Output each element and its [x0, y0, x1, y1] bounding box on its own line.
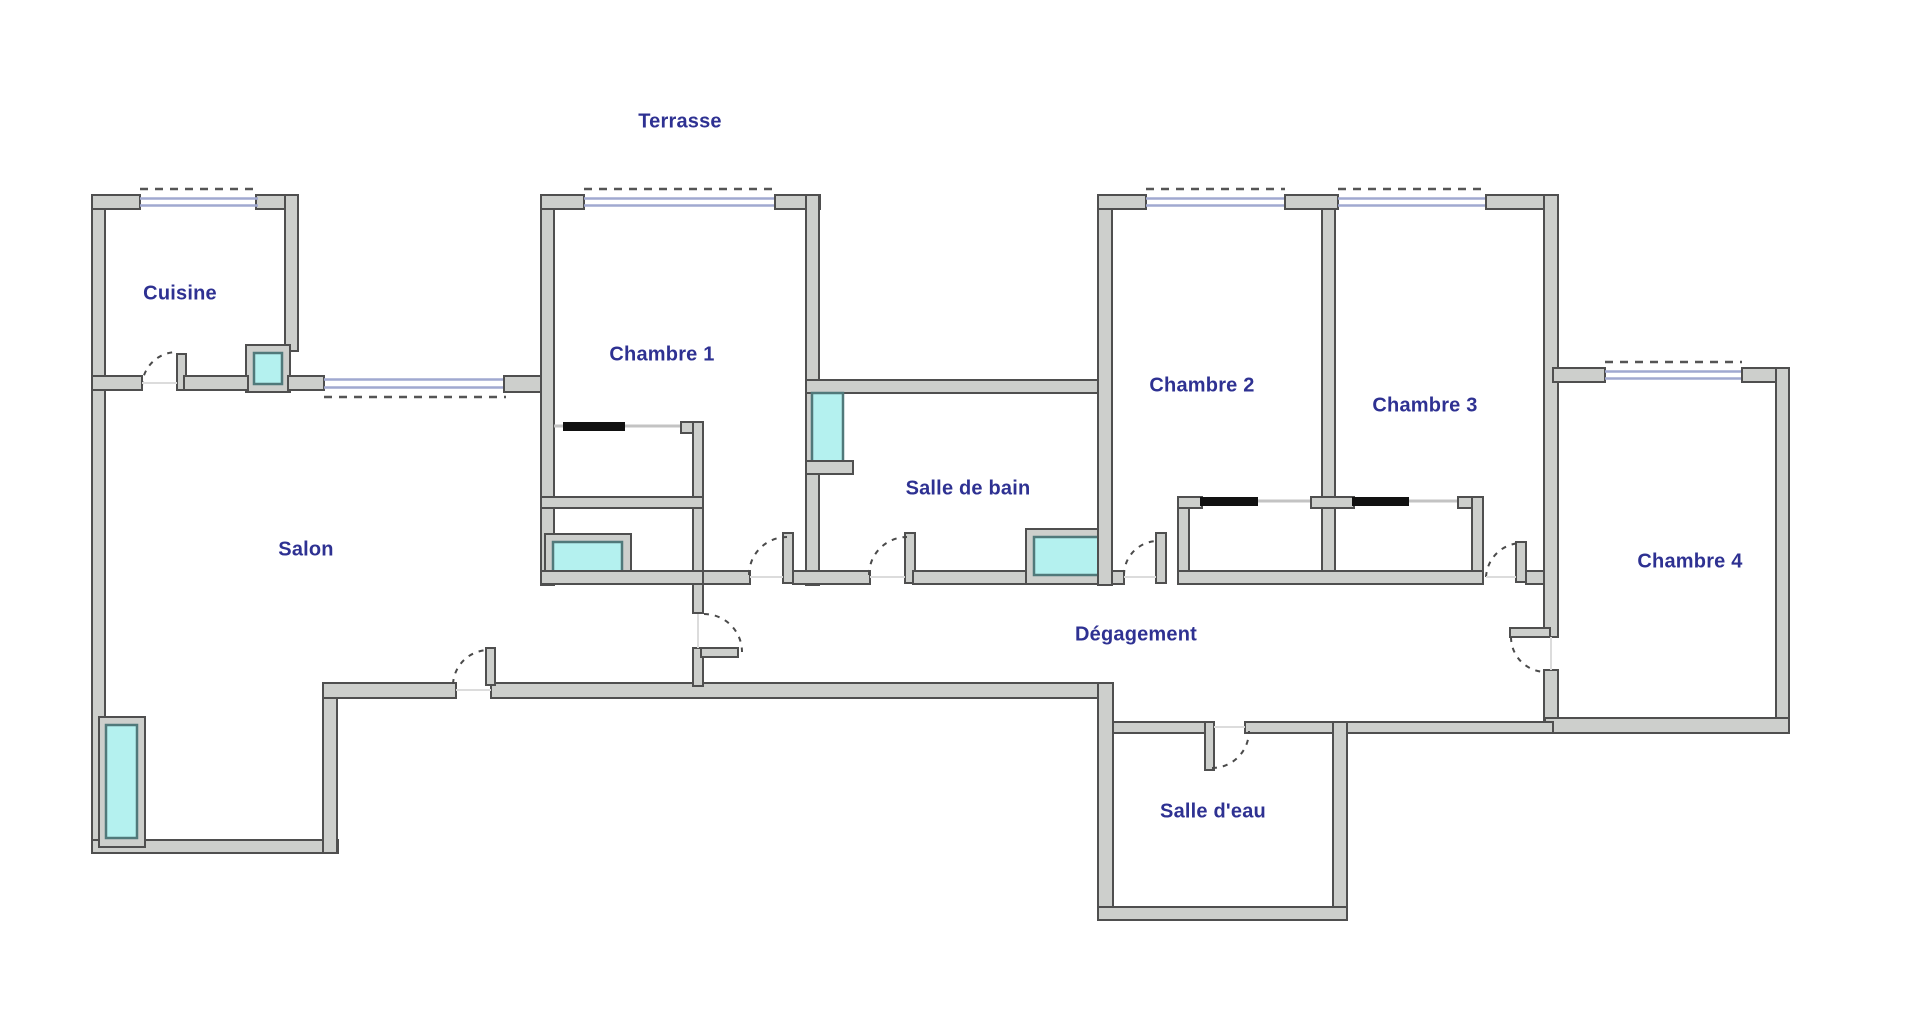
wall-segment	[541, 195, 554, 585]
wall-segment	[541, 571, 703, 584]
room-label-salle-d-eau: Salle d'eau	[1160, 801, 1266, 824]
door-arc	[869, 537, 907, 575]
door-arc	[704, 614, 742, 652]
wall-segment	[913, 571, 1032, 584]
wall-segment	[1098, 195, 1146, 209]
wall-segment	[288, 376, 324, 390]
wall-segment	[806, 461, 853, 474]
door-arc	[1511, 637, 1546, 672]
wall-segment	[1178, 497, 1202, 508]
wall-segment	[323, 683, 337, 853]
chambre4-walls	[1510, 195, 1789, 733]
room-label-chambre-3: Chambre 3	[1372, 395, 1477, 418]
room-label-terrasse: Terrasse	[638, 111, 722, 134]
sliding-door	[1352, 497, 1409, 506]
wall-segment	[1285, 195, 1338, 209]
room-label-chambre-2: Chambre 2	[1149, 375, 1254, 398]
door-leaf	[1205, 722, 1214, 770]
door-arc	[142, 352, 177, 386]
wall-segment	[1544, 670, 1558, 725]
floor-plan: Terrasse Cuisine Salon Chambre 1 Salle d…	[0, 0, 1920, 1027]
sliding-door	[1200, 497, 1258, 506]
salon-window	[106, 725, 137, 838]
chambre1-walls	[541, 189, 820, 686]
bath-interior-window	[812, 393, 843, 463]
wall-segment	[541, 497, 703, 508]
terrace-bay	[324, 376, 542, 397]
floor-plan-drawing	[0, 0, 1920, 1027]
door-leaf	[1156, 533, 1166, 583]
room-label-cuisine: Cuisine	[143, 283, 217, 306]
wall-segment	[285, 195, 298, 351]
wall-segment	[1333, 722, 1347, 920]
room-label-chambre-4: Chambre 4	[1637, 551, 1742, 574]
room-label-salle-de-bain: Salle de bain	[906, 478, 1031, 501]
wall-segment	[1311, 497, 1354, 508]
wall-segment	[1545, 718, 1789, 733]
sliding-door	[563, 422, 625, 431]
wall-segment	[1112, 571, 1124, 584]
wall-segment	[1113, 722, 1207, 733]
wall-segment	[92, 195, 140, 209]
salon-walls	[92, 195, 1113, 853]
door-leaf	[486, 648, 495, 685]
door-leaf	[701, 648, 738, 657]
door-leaf	[783, 533, 793, 583]
door-leaf	[1510, 628, 1550, 637]
wall-segment	[703, 571, 750, 584]
wall-segment	[1776, 368, 1789, 733]
room-label-chambre-1: Chambre 1	[609, 344, 714, 367]
wall-segment	[806, 380, 1112, 393]
wall-segment	[1178, 571, 1483, 584]
wall-segment	[184, 376, 248, 390]
door-arc	[1124, 541, 1158, 575]
door-arc	[749, 537, 787, 575]
wall-segment	[1098, 195, 1112, 585]
door-arc	[453, 650, 488, 684]
door-arc	[1212, 731, 1249, 768]
room-label-salon: Salon	[278, 539, 333, 562]
wall-segment	[541, 195, 584, 209]
cuisine-interior-window	[254, 353, 282, 384]
wall-segment	[1098, 907, 1347, 920]
wall-segment	[504, 376, 542, 392]
bath-interior-window	[1034, 537, 1104, 575]
wall-segment	[1553, 368, 1605, 382]
room-label-degagement: Dégagement	[1075, 624, 1197, 647]
wall-segment	[1322, 209, 1335, 579]
wall-segment	[1486, 195, 1546, 209]
wall-segment	[1245, 722, 1553, 733]
wall-segment	[1098, 683, 1113, 920]
wall-segment	[323, 683, 456, 698]
wall-segment	[491, 683, 1113, 698]
wall-segment	[92, 376, 142, 390]
door-leaf	[1516, 542, 1526, 582]
wall-segment	[793, 571, 870, 584]
wall-segment	[1544, 195, 1558, 637]
